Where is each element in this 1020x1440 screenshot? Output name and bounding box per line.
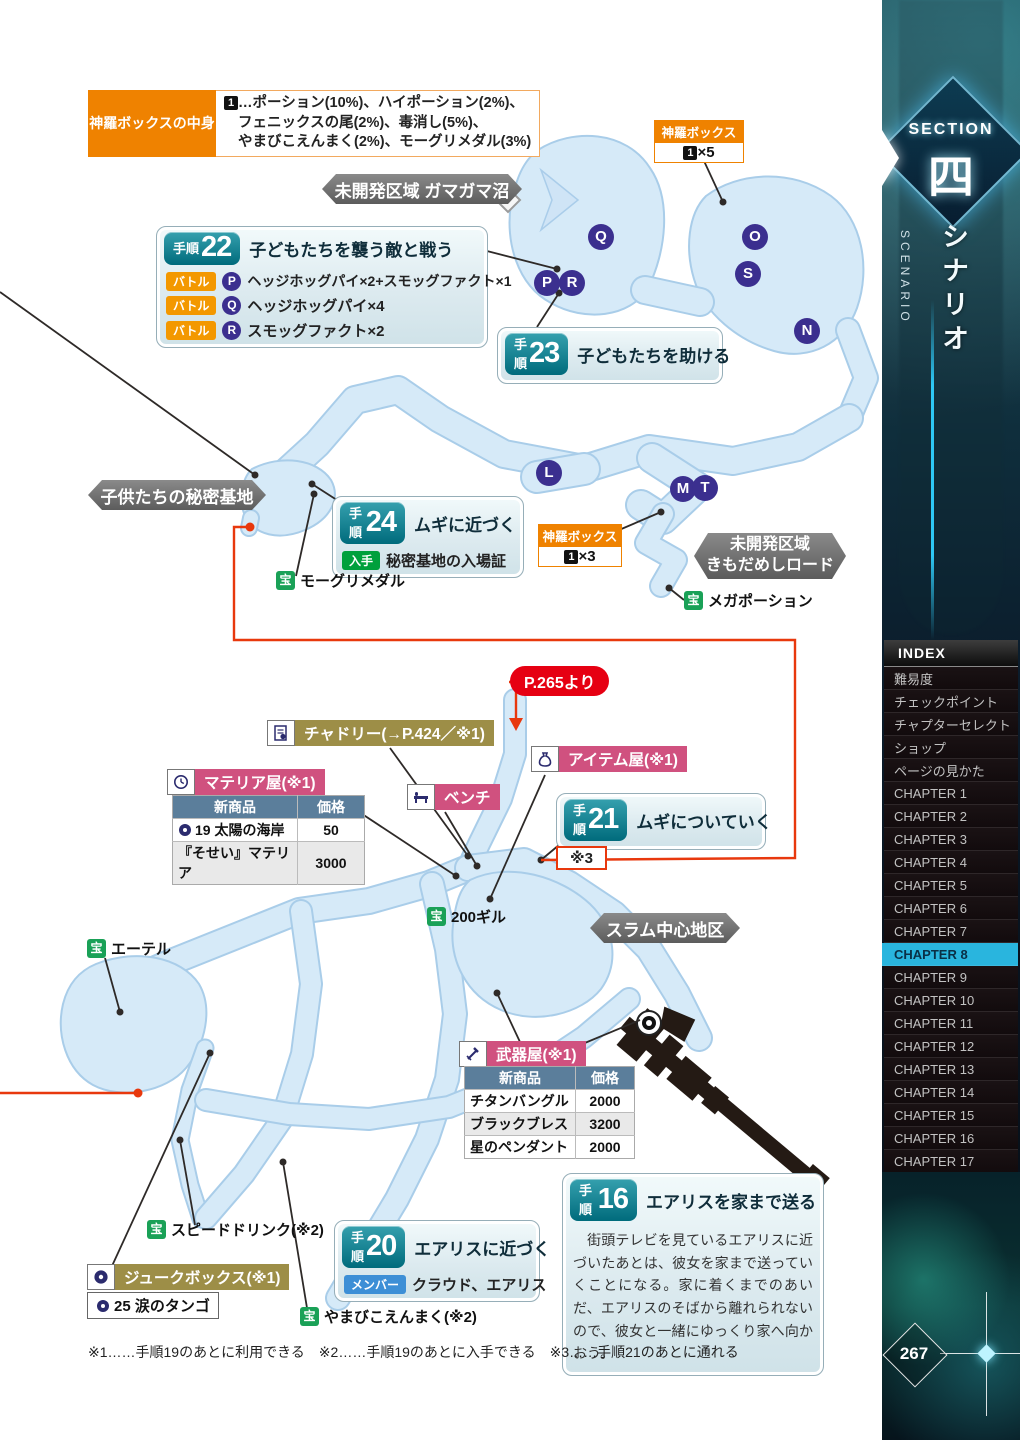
step-23-head: 手順 23 子どもたちを助ける [498, 328, 722, 379]
member-text: クラウド、エアリス [412, 1274, 546, 1295]
step-tag: 手順 [514, 334, 527, 372]
treasure-icon: 宝 [300, 1307, 319, 1326]
index-item-chapter-13[interactable]: CHAPTER 13 [884, 1058, 1018, 1081]
item-price: 50 [298, 819, 365, 842]
obtain-text: 秘密基地の入場証 [386, 550, 506, 571]
report-icon [267, 720, 295, 746]
step-21-box: 手順 21 ムギについていく [556, 793, 766, 850]
map-marker-r: R [559, 270, 585, 296]
col-price: 価格 [576, 1067, 635, 1090]
item-shop-label: アイテム屋(※1) [559, 746, 687, 772]
battle-text: スモッグファクト×2 [247, 320, 384, 341]
index-item-chapter-12[interactable]: CHAPTER 12 [884, 1035, 1018, 1058]
table-row: チタンバングル 2000 [465, 1090, 635, 1113]
step-number-label: 手順 20 [342, 1226, 405, 1268]
table-header-row: 新商品 価格 [465, 1067, 635, 1090]
item-name: 星のペンダント [465, 1136, 576, 1159]
treasure-name: エーテル [111, 938, 171, 959]
item-name: チタンバングル [465, 1090, 576, 1113]
step-tag: 手順 [349, 503, 364, 541]
member-row: メンバー クラウド、エアリス [335, 1272, 539, 1297]
area-label-secret-base: 子供たちの秘密基地 [88, 480, 266, 510]
accent-line [931, 300, 934, 640]
index-item-chapter-14[interactable]: CHAPTER 14 [884, 1081, 1018, 1104]
box-marker-icon: 1 [224, 96, 238, 110]
step-tag: 手順 [579, 1180, 596, 1218]
area-label-line: 未開発区域 [694, 535, 846, 556]
note3-badge: ※3 [556, 846, 607, 870]
sidebar: SECTION 四 シナリオ SCENARIO INDEX 難易度 チェックポイ… [882, 0, 1020, 1440]
battle-row: バトル Q ヘッジホッグパイ×4 [157, 293, 487, 318]
materia-shop-table: 新商品 価格 19 太陽の海岸 50 『そせい』マテリア 3000 [172, 795, 365, 885]
index-item-chapter-7[interactable]: CHAPTER 7 [884, 920, 1018, 943]
step-22-box: 手順 22 子どもたちを襲う敵と戦う バトル P ヘッジホッグパイ×2+スモッグ… [156, 226, 488, 348]
footnotes: ※1……手順19のあとに利用できる ※2……手順19のあとに入手できる ※3……… [88, 1342, 739, 1362]
treasure-mega-potion: 宝 メガポーション [684, 590, 813, 611]
item-name: 19 太陽の海岸 [195, 820, 284, 840]
treasure-icon: 宝 [684, 591, 703, 610]
step-number: 21 [588, 805, 618, 834]
step-number-label: 手順 24 [340, 502, 405, 544]
item-price: 2000 [576, 1136, 635, 1159]
battle-text: ヘッジホッグパイ×4 [247, 295, 384, 316]
step-tag: 手順 [351, 1227, 364, 1265]
index-item-chapter-8-active[interactable]: CHAPTER 8 [882, 943, 1018, 966]
step-24-head: 手順 24 ムギに近づく [333, 497, 523, 548]
step-number: 24 [366, 508, 396, 537]
map-marker-l: L [536, 460, 562, 486]
battle-badge: バトル [166, 321, 216, 340]
legend-line-3: やまびこえんまく(2%)、モーグリメダル(3%) [238, 134, 531, 150]
legend-line-2: フェニックスの尾(2%)、毒消し(5%)、 [238, 115, 487, 131]
index-item-how-to-read[interactable]: ページの見かた [884, 759, 1018, 782]
table-header-row: 新商品 価格 [173, 796, 365, 819]
chadley-label: チャドリー(→P.424／※1) [295, 720, 494, 746]
materia-shop-label: マテリア屋(※1) [195, 769, 325, 795]
treasure-200-gil: 宝 200ギル [427, 906, 506, 927]
scenario-title-jp: シナリオ [934, 222, 973, 358]
step-number-label: 手順 23 [505, 333, 568, 375]
shinra-box-title: 神羅ボックス [538, 524, 622, 547]
map-marker-q: Q [588, 224, 614, 250]
obtain-badge: 入手 [342, 551, 380, 570]
bottom-art [882, 1172, 1020, 1440]
weapon-shop-badge: 武器屋(※1) [459, 1041, 586, 1067]
table-row: 『そせい』マテリア 3000 [173, 842, 365, 885]
battle-letter-icon: Q [222, 296, 241, 315]
scenario-title-en: SCENARIO [898, 230, 912, 325]
treasure-speed-drink: 宝 スピードドリンク(※2) [147, 1219, 324, 1240]
index-item-chapter-4[interactable]: CHAPTER 4 [884, 851, 1018, 874]
step-number: 23 [529, 339, 559, 368]
treasure-icon: 宝 [427, 907, 446, 926]
step-title: ムギについていく [636, 808, 772, 833]
step-16-head: 手順 16 エアリスを家まで送る [563, 1174, 823, 1225]
item-price: 3000 [298, 842, 365, 885]
step-number-label: 手順 16 [570, 1179, 637, 1221]
box-marker-icon: 1 [564, 550, 578, 564]
section-label: SECTION [882, 121, 1020, 139]
music-disc-icon [178, 823, 192, 837]
treasure-name: 200ギル [451, 906, 506, 927]
treasure-moogle-medal: 宝 モーグリメダル [276, 570, 405, 591]
table-row: 19 太陽の海岸 50 [173, 819, 365, 842]
area-label-line: きもだめしロード [694, 556, 846, 577]
step-title: 子どもたちを助ける [577, 342, 730, 367]
page-number: 267 [892, 1332, 936, 1376]
section-kanji: 四 [882, 141, 1020, 207]
index-item-chapter-1[interactable]: CHAPTER 1 [884, 782, 1018, 805]
index-item-chapter-5[interactable]: CHAPTER 5 [884, 874, 1018, 897]
battle-row: バトル P ヘッジホッグパイ×2+スモッグファクト×1 [157, 269, 487, 293]
area-label-kimodameshi: 未開発区域 きもだめしロード [694, 533, 846, 579]
legend-line-1: …ポーション(10%)、ハイポーション(2%)、 [238, 95, 524, 111]
battle-letter-icon: P [222, 272, 241, 291]
track-name: 25 涙のタンゴ [114, 1295, 210, 1316]
jukebox-track: 25 涙のタンゴ [87, 1292, 219, 1319]
index-item-chapter-10[interactable]: CHAPTER 10 [884, 989, 1018, 1012]
treasure-name: やまびこえんまく(※2) [324, 1306, 477, 1327]
index-item-chapter-select[interactable]: チャプターセレクト [884, 713, 1018, 736]
step-number: 20 [366, 1232, 396, 1261]
item-shop-badge: アイテム屋(※1) [531, 746, 687, 772]
treasure-icon: 宝 [87, 939, 106, 958]
area-label-slum-center: スラム中心地区 [590, 913, 740, 943]
map-marker-p: P [534, 270, 560, 296]
index-item-chapter-3[interactable]: CHAPTER 3 [884, 828, 1018, 851]
map-marker-n: N [794, 318, 820, 344]
index-item-chapter-6[interactable]: CHAPTER 6 [884, 897, 1018, 920]
treasure-echo-screen: 宝 やまびこえんまく(※2) [300, 1306, 477, 1327]
map-marker-s: S [735, 261, 761, 287]
index-item-shop[interactable]: ショップ [884, 736, 1018, 759]
item-name: ブラックブレス [465, 1113, 576, 1136]
jukebox-badge: ジュークボックス(※1) [87, 1264, 289, 1290]
battle-text: ヘッジホッグパイ×2+スモッグファクト×1 [247, 271, 511, 291]
step-tag: 手順 [173, 238, 199, 257]
sword-icon [459, 1041, 487, 1067]
materia-shop-badge: マテリア屋(※1) [167, 769, 325, 795]
shinra-box-label-x5: 神羅ボックス 1×5 [654, 120, 744, 163]
step-number-label: 手順 21 [564, 799, 627, 841]
index-item-chapter-2[interactable]: CHAPTER 2 [884, 805, 1018, 828]
index-menu: INDEX 難易度 チェックポイント チャプターセレクト ショップ ページの見か… [884, 640, 1018, 1196]
shinra-box-legend: 神羅ボックスの中身 1…ポーション(10%)、ハイポーション(2%)、 フェニッ… [88, 90, 540, 157]
shinra-box-label-x3: 神羅ボックス 1×3 [538, 524, 622, 567]
item-price: 2000 [576, 1090, 635, 1113]
step-number: 16 [598, 1185, 628, 1214]
table-row: 星のペンダント 2000 [465, 1136, 635, 1159]
member-badge: メンバー [344, 1275, 406, 1294]
battle-badge: バトル [166, 272, 216, 291]
bench-icon [407, 784, 435, 810]
shinra-box-count: 1×5 [654, 143, 744, 163]
col-price: 価格 [298, 796, 365, 819]
treasure-ether: 宝 エーテル [87, 938, 171, 959]
col-new-items: 新商品 [173, 796, 298, 819]
index-item-difficulty[interactable]: 難易度 [884, 667, 1018, 690]
weapon-shop-table: 新商品 価格 チタンバングル 2000 ブラックブレス 3200 星のペンダント… [464, 1066, 635, 1159]
treasure-name: メガポーション [708, 590, 813, 611]
index-item-chapter-9[interactable]: CHAPTER 9 [884, 966, 1018, 989]
index-item-chapter-11[interactable]: CHAPTER 11 [884, 1012, 1018, 1035]
index-item-chapter-15[interactable]: CHAPTER 15 [884, 1104, 1018, 1127]
index-title: INDEX [884, 640, 1018, 667]
step-number-label: 手順 22 [164, 232, 240, 265]
bench-badge: ベンチ [407, 784, 500, 810]
count-text: ×5 [697, 144, 714, 161]
item-name: 『そせい』マテリア [173, 842, 298, 885]
step-20-box: 手順 20 エアリスに近づく メンバー クラウド、エアリス [334, 1220, 540, 1302]
map-marker-t: T [692, 475, 718, 501]
weapon-shop-label: 武器屋(※1) [487, 1041, 586, 1067]
battle-letter-icon: R [222, 321, 241, 340]
battle-badge: バトル [166, 296, 216, 315]
treasure-icon: 宝 [147, 1220, 166, 1239]
step-22-head: 手順 22 子どもたちを襲う敵と戦う [157, 227, 487, 269]
map-marker-o: O [742, 224, 768, 250]
step-20-head: 手順 20 エアリスに近づく [335, 1221, 539, 1272]
step-title: エアリスを家まで送る [646, 1188, 816, 1213]
legend-title: 神羅ボックスの中身 [88, 90, 216, 157]
box-marker-icon: 1 [683, 146, 697, 160]
step-title: エアリスに近づく [414, 1235, 550, 1260]
step-number: 22 [201, 233, 231, 262]
bench-label: ベンチ [435, 784, 500, 810]
area-label-gamagama: 未開発区域 ガマガマ沼 [322, 174, 522, 204]
battle-row: バトル R スモッグファクト×2 [157, 318, 487, 343]
step-23-box: 手順 23 子どもたちを助ける [497, 327, 723, 384]
step-24-box: 手順 24 ムギに近づく 入手 秘密基地の入場証 [332, 496, 524, 578]
item-price: 3200 [576, 1113, 635, 1136]
from-page-badge: P.265より [510, 666, 609, 696]
treasure-icon: 宝 [276, 571, 295, 590]
step-title: 子どもたちを襲う敵と戦う [249, 236, 453, 261]
item-bag-icon [531, 746, 559, 772]
step-title: ムギに近づく [414, 511, 516, 536]
jukebox-label: ジュークボックス(※1) [115, 1264, 289, 1290]
step-21-head: 手順 21 ムギについていく [557, 794, 765, 845]
shinra-box-count: 1×3 [538, 547, 622, 567]
index-item-checkpoint[interactable]: チェックポイント [884, 690, 1018, 713]
index-item-chapter-16[interactable]: CHAPTER 16 [884, 1127, 1018, 1150]
treasure-name: モーグリメダル [300, 570, 405, 591]
treasure-name: スピードドリンク(※2) [171, 1219, 324, 1240]
legend-body: 1…ポーション(10%)、ハイポーション(2%)、 フェニックスの尾(2%)、毒… [216, 90, 540, 157]
music-disc-icon [87, 1264, 115, 1290]
table-row: ブラックブレス 3200 [465, 1113, 635, 1136]
count-text: ×3 [578, 548, 595, 565]
music-disc-icon [96, 1299, 110, 1313]
index-item-chapter-17[interactable]: CHAPTER 17 [884, 1150, 1018, 1173]
shinra-box-title: 神羅ボックス [654, 120, 744, 143]
clock-icon [167, 769, 195, 795]
col-new-items: 新商品 [465, 1067, 576, 1090]
chadley-badge: チャドリー(→P.424／※1) [267, 720, 494, 746]
step-tag: 手順 [573, 800, 586, 838]
